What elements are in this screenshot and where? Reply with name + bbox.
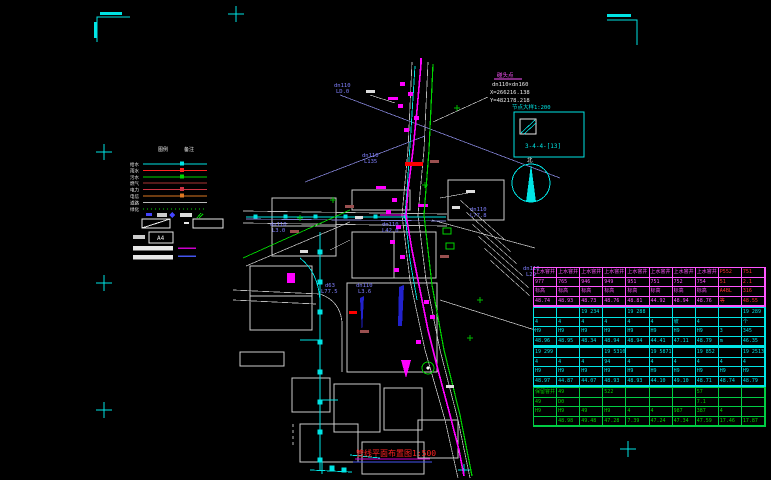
table-cell: 48.93 xyxy=(557,297,580,307)
table-cell: 48.73 xyxy=(580,297,603,307)
table-cell: 57 xyxy=(696,388,719,398)
legend-header: 备注 xyxy=(184,146,194,153)
table-cell: H9 xyxy=(696,327,719,337)
manhole-dot xyxy=(427,367,430,370)
legend-row-label: 污水 xyxy=(130,174,139,181)
gas-main xyxy=(287,58,464,476)
table-cell xyxy=(673,348,696,358)
table-cell: 上水窨井 xyxy=(626,268,649,278)
cad-viewport[interactable]: 图例备注给水雨水污水燃气电力电信道路绿化 A4 xyxy=(0,0,771,480)
legend-row-label: 电信 xyxy=(130,193,139,200)
pipe-label: LD.0 xyxy=(336,89,349,95)
table-cell xyxy=(603,398,626,408)
table-cell xyxy=(742,388,765,398)
legend-header: 图例 xyxy=(158,146,168,153)
table-cell: 标高 xyxy=(673,287,696,297)
table-cell xyxy=(719,398,742,408)
table-cell: 49 xyxy=(580,407,603,417)
table-cell: 4 xyxy=(603,318,626,328)
detail-box-title: 节点大样1:200 xyxy=(512,103,551,111)
table-cell xyxy=(626,398,649,408)
table-cell xyxy=(626,388,649,398)
table-cell: 44.87 xyxy=(557,377,580,387)
legend-row-label: 绿化 xyxy=(130,206,139,213)
legend-row-marker xyxy=(180,174,184,178)
table-cell: 345 xyxy=(742,327,765,337)
table-cell: 4 xyxy=(534,358,557,368)
table-cell: 坡 xyxy=(673,318,696,328)
table-group: 上水窨井上水窨井上水窨井上水窨井上水窨井上水窨井上水窨井上水窨井P5527519… xyxy=(533,267,766,307)
north-arrow-needle xyxy=(526,164,536,202)
table-cell: 48.95 xyxy=(557,337,580,347)
table-cell: H9 xyxy=(603,327,626,337)
table-cell: 44.10 xyxy=(650,377,673,387)
table-cell: 49 xyxy=(534,398,557,408)
table-cell: 752 xyxy=(673,278,696,288)
table-cell: 47.28 xyxy=(603,417,626,427)
table-cell: P552 xyxy=(719,268,742,278)
corner-bracket-top-left xyxy=(97,17,130,42)
table-cell: 316 xyxy=(742,287,765,297)
green-box xyxy=(443,228,451,234)
table-cell: 48.74 xyxy=(719,377,742,387)
table-cell: 标高 xyxy=(557,287,580,297)
legend-row-label: 雨水 xyxy=(130,167,139,174)
legend-symbol-green xyxy=(197,213,203,218)
parcel xyxy=(352,190,410,210)
table-cell: H9 xyxy=(534,367,557,377)
tiny-label-blob xyxy=(133,235,145,239)
table-cell xyxy=(742,407,765,417)
green-box xyxy=(446,243,454,249)
table-cell: 48.97 xyxy=(534,377,557,387)
table-cell: H9 xyxy=(673,327,696,337)
legend-symbol-diamond xyxy=(169,212,175,218)
legend-row-marker xyxy=(180,162,184,166)
table-cell: H9 xyxy=(603,367,626,377)
table-cell: 48.98 xyxy=(557,417,580,427)
table-cell: 47.34 xyxy=(673,417,696,427)
table-cell: 44.07 xyxy=(580,377,603,387)
north-arrow-label: 北 xyxy=(527,156,533,164)
legend-scale-value: A4 xyxy=(157,235,165,242)
table-cell: 48.93 xyxy=(603,377,626,387)
table-cell: H9 xyxy=(534,407,557,417)
legend-row-label: 给水 xyxy=(130,161,139,168)
tiny-label-blob xyxy=(300,90,475,388)
annotation-coord-x: X=266216.138 xyxy=(490,90,530,96)
tiny-label-blob xyxy=(180,213,192,217)
north-arrow: 北 xyxy=(512,156,550,202)
table-cell: 946 xyxy=(580,278,603,288)
table-cell: 48.55 xyxy=(742,297,765,307)
detail-index-box: 节点大样1:200 3-4-4-[13] xyxy=(512,103,584,157)
table-cell: 48.93 xyxy=(626,377,649,387)
table-cell: 49.48 xyxy=(580,417,603,427)
table-cell: 48.74 xyxy=(534,297,557,307)
table-cell: 48.71 xyxy=(696,377,719,387)
red-segment xyxy=(405,162,423,166)
table-group: 19 29919 531019 587119 85219 25134449444… xyxy=(533,347,766,387)
parcel xyxy=(240,352,284,366)
gas-marker-triangle xyxy=(401,360,411,378)
table-cell: 4 xyxy=(742,358,765,368)
table-cell: 上水窨井 xyxy=(696,268,719,278)
table-cell xyxy=(696,308,719,318)
table-cell: 19 5871 xyxy=(650,348,673,358)
pipe-label: L3.6 xyxy=(358,289,371,295)
table-cell: 17.87 xyxy=(742,417,765,427)
table-cell: 4 xyxy=(650,318,673,328)
table-cell: 上水窨井 xyxy=(580,268,603,278)
table-cell: 17.46 xyxy=(719,417,742,427)
table-cell: 48.34 xyxy=(580,337,603,347)
leader-line xyxy=(433,97,488,122)
red-segment xyxy=(349,311,357,314)
table-cell: 46.35 xyxy=(742,337,765,347)
legend-bar xyxy=(133,255,173,260)
annotation-tag: 碰头点 xyxy=(497,71,514,79)
table-cell: 48.76 xyxy=(696,297,719,307)
legend-row-marker xyxy=(180,187,184,191)
parcel xyxy=(334,384,380,432)
parcel xyxy=(384,388,422,430)
table-cell: 48.94 xyxy=(626,337,649,347)
tiny-label-blob xyxy=(100,12,122,15)
table-cell: A4BL xyxy=(719,287,742,297)
table-cell: H9 xyxy=(626,367,649,377)
table-cell: H9 xyxy=(696,367,719,377)
pipe-label: L42.0 xyxy=(382,228,399,234)
table-cell: 4 xyxy=(580,318,603,328)
legend-symbol-blue-tick xyxy=(146,213,152,216)
table-cell: 个 xyxy=(742,318,765,328)
table-cell: 48.79 xyxy=(696,337,719,347)
pipe-data-table: 上水窨井上水窨井上水窨井上水窨井上水窨井上水窨井上水窨井上水窨井P5527519… xyxy=(533,267,766,419)
table-cell: H9 xyxy=(557,327,580,337)
road-edge xyxy=(233,300,316,304)
table-cell: 标高 xyxy=(603,287,626,297)
detail-box-code: 3-4-4-[13] xyxy=(525,143,561,150)
table-cell: 19 289 xyxy=(742,308,765,318)
tiny-label-blob xyxy=(184,222,189,224)
legend-row-label: 燃气 xyxy=(130,180,139,187)
table-cell xyxy=(719,388,742,398)
table-cell: 4 xyxy=(557,358,580,368)
table-cell: 2.1 xyxy=(742,278,765,288)
table-cell: 4 xyxy=(580,358,603,368)
table-cell: 387 xyxy=(696,407,719,417)
table-cell: 上水窨井 xyxy=(650,268,673,278)
table-cell: 47.11 xyxy=(673,337,696,347)
table-cell: 49 xyxy=(557,388,580,398)
table-cell: 7.39 xyxy=(626,417,649,427)
table-cell: 47.24 xyxy=(650,417,673,427)
table-cell: 48.79 xyxy=(742,377,765,387)
legend-row-marker xyxy=(180,168,184,172)
table-cell: 94 xyxy=(603,358,626,368)
blue-wedge xyxy=(398,285,404,326)
table-cell: D0 xyxy=(557,398,580,408)
table-cell xyxy=(557,308,580,318)
tiny-label-blob xyxy=(157,213,167,217)
table-cell: 4 xyxy=(626,358,649,368)
table-cell xyxy=(580,348,603,358)
tiny-label-blob xyxy=(94,22,97,38)
table-cell xyxy=(719,308,742,318)
table-cell: 4 xyxy=(673,358,696,368)
road-edge xyxy=(233,290,320,294)
table-cell: 保留窨井 xyxy=(534,388,557,398)
table-cell xyxy=(719,348,742,358)
table-cell: 49.10 xyxy=(673,377,696,387)
coordinate-annotation: 碰头点 dn110×dn160 X=266216.138 Y=482178.21… xyxy=(433,71,530,122)
table-cell: 522 xyxy=(603,388,626,398)
table-cell: 标高 xyxy=(650,287,673,297)
legend-row-marker xyxy=(180,194,184,198)
table-cell: 951 xyxy=(626,278,649,288)
table-cell: 19 5310 xyxy=(603,348,626,358)
table-cell: 19 234 xyxy=(580,308,603,318)
table-cell: 47.59 xyxy=(696,417,719,427)
legend-slope-line xyxy=(142,219,170,228)
legend-row-label: 电力 xyxy=(130,187,139,194)
road-curve xyxy=(320,294,342,372)
table-cell: 4 xyxy=(650,358,673,368)
green-network xyxy=(243,64,483,476)
table-cell: 4 xyxy=(650,407,673,417)
table-cell: H9 xyxy=(557,367,580,377)
parcel xyxy=(250,266,312,330)
table-cell xyxy=(534,417,557,427)
table-cell: 4 xyxy=(719,407,742,417)
table-cell: 51 xyxy=(719,278,742,288)
table-cell: H9 xyxy=(626,327,649,337)
table-cell xyxy=(557,348,580,358)
table-cell: 标高 xyxy=(696,287,719,297)
table-cell: 上水窨井 xyxy=(673,268,696,278)
corner-bracket-top-right xyxy=(607,20,637,45)
table-cell: 标高 xyxy=(534,287,557,297)
table-cell: 19 2513 xyxy=(742,348,765,358)
table-cell xyxy=(673,398,696,408)
table-cell xyxy=(580,398,603,408)
table-cell: 4 xyxy=(626,318,649,328)
table-cell xyxy=(603,308,626,318)
legend-row-label: 道路 xyxy=(130,199,139,206)
table-group: 保留窨井495225749D07.1H9H949H944987387448.98… xyxy=(533,387,766,427)
parcel xyxy=(362,442,424,474)
table-cell xyxy=(626,348,649,358)
table-cell: m xyxy=(719,337,742,347)
table-cell: H9 xyxy=(742,367,765,377)
annotation-pipe: dn110×dn160 xyxy=(492,82,528,88)
table-cell: 4 xyxy=(719,358,742,368)
table-cell xyxy=(650,388,673,398)
tiny-label-blob xyxy=(607,14,631,17)
table-cell: 标高 xyxy=(626,287,649,297)
table-cell: 987 xyxy=(673,407,696,417)
table-cell: 上水窨井 xyxy=(534,268,557,278)
table-cell: 765 xyxy=(557,278,580,288)
table-cell: H9 xyxy=(719,367,742,377)
table-cell xyxy=(580,388,603,398)
pipe-label: L3.0 xyxy=(272,228,285,234)
pipe-label: L135 xyxy=(364,159,377,165)
table-cell: 44.41 xyxy=(650,337,673,347)
table-cell: 4 xyxy=(534,318,557,328)
legend-plain-box xyxy=(193,219,223,228)
table-cell xyxy=(650,308,673,318)
building-block xyxy=(347,283,437,372)
table-cell: H9 xyxy=(580,327,603,337)
legend-symbols: A4 xyxy=(133,212,223,260)
table-cell: 48.94 xyxy=(673,297,696,307)
table-cell: 949 xyxy=(603,278,626,288)
gas-main-line xyxy=(406,58,464,476)
table-cell: H9 xyxy=(534,327,557,337)
table-cell: 上水窨井 xyxy=(557,268,580,278)
table-cell: 上水窨井 xyxy=(603,268,626,278)
table-group: 19 23419 28819 289444444坡4个H9H9H9H9H9H9H… xyxy=(533,307,766,347)
drawing-title-text: 管线平面布置图1:500 xyxy=(356,448,436,458)
table-cell: 754 xyxy=(696,278,719,288)
table-cell: 3 xyxy=(719,327,742,337)
table-cell: 977 xyxy=(534,278,557,288)
table-cell: 19 288 xyxy=(626,308,649,318)
table-cell: 19 852 xyxy=(696,348,719,358)
pipe-label: L77.8 xyxy=(470,213,487,219)
table-cell: 7.1 xyxy=(696,398,719,408)
green-cable-line xyxy=(424,64,472,476)
table-cell: 751 xyxy=(650,278,673,288)
table-cell: 48.76 xyxy=(603,297,626,307)
table-cell: H9 xyxy=(603,407,626,417)
table-cell: H9 xyxy=(650,327,673,337)
parcel xyxy=(292,378,330,412)
table-cell: 19 299 xyxy=(534,348,557,358)
table-cell: 标高 xyxy=(580,287,603,297)
table-cell: 4 xyxy=(696,318,719,328)
table-cell: 44.92 xyxy=(650,297,673,307)
table-cell: 4 xyxy=(626,407,649,417)
parcel xyxy=(300,424,358,462)
table-cell xyxy=(673,388,696,398)
table-cell: 48.94 xyxy=(603,337,626,347)
table-cell: H9 xyxy=(673,367,696,377)
table-cell xyxy=(742,398,765,408)
blue-wedge xyxy=(360,296,364,332)
road-edge xyxy=(246,222,350,266)
table-cell: 751 xyxy=(742,268,765,278)
table-cell: 4 xyxy=(557,318,580,328)
table-cell: 等 xyxy=(719,297,742,307)
legend-bar xyxy=(133,246,173,251)
table-cell: H9 xyxy=(650,367,673,377)
table-cell: 48.96 xyxy=(534,337,557,347)
table-cell xyxy=(650,398,673,408)
table-cell: 48.81 xyxy=(626,297,649,307)
table-cell: 4 xyxy=(696,358,719,368)
table-cell xyxy=(719,318,742,328)
table-cell: H9 xyxy=(557,407,580,417)
table-cell xyxy=(673,308,696,318)
table-cell: H9 xyxy=(580,367,603,377)
annotation-coord-y: Y=482178.218 xyxy=(490,98,530,104)
legend-panel: 图例备注给水雨水污水燃气电力电信道路绿化 xyxy=(130,146,207,213)
table-cell xyxy=(534,308,557,318)
road-edge xyxy=(440,300,535,330)
pipe-label: L77.5 xyxy=(321,289,338,295)
